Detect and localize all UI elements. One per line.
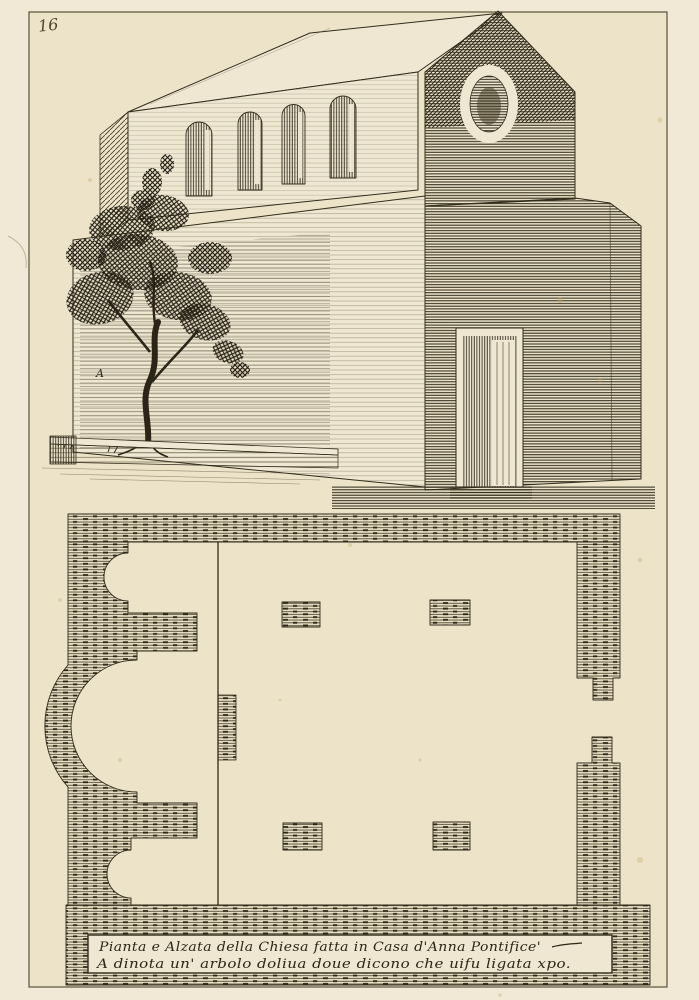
etching-print: 16: [0, 0, 699, 1000]
plan-right-wall-upper: [577, 542, 620, 700]
oculus-window: [460, 65, 518, 143]
caption-line-2: A dinota un' arbolo doliua doue dicono c…: [96, 957, 571, 972]
plate-number: 16: [37, 15, 59, 36]
nave-pier-nw: [282, 602, 320, 627]
plate-scratch: [8, 236, 26, 268]
arched-window-4: [330, 96, 356, 178]
arched-window-1: [186, 122, 212, 196]
plan-partition-pier: [218, 695, 236, 760]
wall-letter-a: A: [95, 367, 104, 380]
nave-pier-ne: [430, 600, 470, 625]
parapet-end-block: [50, 436, 76, 464]
nave-pier-se: [433, 822, 470, 850]
nave-pier-sw: [283, 823, 322, 850]
plan-top-wall: [68, 514, 620, 542]
arched-window-2: [238, 112, 262, 190]
caption-line-1: Pianta e Alzata della Chiesa fatta in Ca…: [98, 940, 541, 955]
caption-cartouche: Pianta e Alzata della Chiesa fatta in Ca…: [88, 935, 612, 973]
ground-shadow: [332, 486, 655, 509]
arched-window-3: [282, 105, 305, 184]
doorway: [450, 328, 532, 499]
etching-sheet: 16: [0, 0, 699, 1000]
